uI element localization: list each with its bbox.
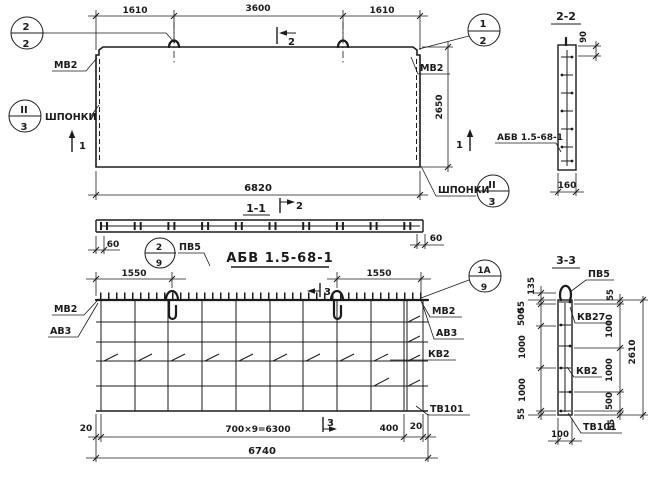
facade-panel-outline	[96, 47, 420, 167]
svg-text:160: 160	[558, 181, 577, 191]
dim-left-column: 135 55 500 1000 1000 55	[517, 277, 556, 420]
svg-text:6820: 6820	[244, 183, 272, 194]
dim-500: 500	[605, 392, 615, 410]
cut-mark-3-bottom: 3	[323, 417, 337, 432]
svg-text:АВ3: АВ3	[50, 326, 71, 337]
section-1-1: 1-1 2 60 60 2 9 ПВ5	[88, 198, 444, 269]
node-top: 1	[480, 19, 487, 30]
dim-500: 500	[517, 308, 527, 326]
dim-400: 400	[380, 424, 399, 434]
svg-text:2: 2	[296, 201, 303, 212]
section-title: 1-1	[246, 202, 266, 215]
node-bottom: 2	[23, 39, 30, 50]
mesh-view: 1550 1550 3 1А 9	[48, 260, 501, 462]
section-title: 2-2	[556, 10, 576, 23]
section-2-2: 2-2 90 160 АБВ 1.5-68-1	[495, 10, 601, 196]
node-bottom: 3	[21, 122, 28, 133]
dim-60-left: 60	[88, 236, 120, 254]
svg-text:АБВ 1.5-68-1: АБВ 1.5-68-1	[226, 251, 333, 266]
dim-6820: 6820	[88, 171, 428, 200]
section-title: 3-3	[556, 254, 576, 267]
cut-1-label: 1	[79, 141, 86, 152]
dim-1000: 1000	[518, 335, 528, 359]
svg-text:2610: 2610	[628, 339, 638, 364]
node-bottom: 2	[480, 36, 487, 47]
dim-20-left: 20	[80, 424, 93, 434]
dim-55: 55	[517, 408, 527, 420]
cut-mark-2-top: 2	[277, 27, 296, 48]
svg-text:2650: 2650	[435, 94, 445, 119]
node-callout-1a-9: 1А 9	[421, 260, 501, 298]
node-callout-2-2: 2 2	[11, 17, 175, 50]
svg-text:60: 60	[107, 240, 120, 250]
dim-55: 55	[607, 419, 617, 431]
dim-6740: 6740	[86, 446, 438, 461]
svg-text:КВ2: КВ2	[576, 366, 598, 377]
dim-20-right: 20	[410, 422, 423, 432]
node-top: 2	[156, 243, 162, 253]
dim-2650: 2650	[422, 42, 453, 172]
splice-marks	[104, 316, 420, 386]
svg-text:АБВ 1.5-68-1: АБВ 1.5-68-1	[497, 133, 563, 143]
svg-text:100: 100	[551, 430, 569, 440]
label-pv5-section: ПВ5	[570, 269, 614, 292]
node-top: II	[488, 180, 495, 191]
node-callout-1-2: 1 2	[419, 14, 500, 49]
svg-text:ПВ5: ПВ5	[588, 269, 610, 280]
dim-55: 55	[606, 289, 616, 301]
cut-mark-2-strip: 2	[280, 198, 303, 213]
node-top: II	[20, 105, 27, 116]
loop-axis-line	[174, 22, 343, 64]
dim-1000: 1000	[518, 378, 528, 402]
label-abv-section: АБВ 1.5-68-1	[495, 133, 563, 152]
pv5-label: ПВ5	[179, 242, 201, 253]
node-bottom: 9	[481, 283, 487, 293]
node-bottom: 3	[489, 197, 496, 208]
label-keys-right: ШПОНКИ II 3	[421, 166, 509, 208]
cut-mark-3-top: 3	[307, 283, 331, 298]
dim-700x9: 700×9=6300	[225, 425, 290, 435]
dim-1000: 1000	[605, 314, 615, 338]
svg-text:1550: 1550	[366, 269, 391, 279]
cut-mark-1-left: 1	[69, 130, 86, 152]
svg-text:МВ2: МВ2	[420, 63, 443, 74]
svg-text:90: 90	[579, 31, 589, 43]
dim-135: 135	[527, 277, 537, 295]
svg-text:3: 3	[327, 418, 334, 429]
svg-text:АВ3: АВ3	[436, 328, 457, 339]
dim-60-right: 60	[410, 234, 444, 249]
svg-text:МВ2: МВ2	[432, 306, 455, 317]
label-mv2-mesh-left: МВ2	[52, 301, 97, 315]
node-callout-2-9: 2 9 ПВ5	[145, 238, 210, 269]
panel-drawing-svg: 1610 3600 1610 2 2 2 МВ2 1	[0, 0, 656, 478]
panel-mark-title: АБВ 1.5-68-1	[226, 251, 333, 267]
node-top: 2	[23, 22, 30, 33]
svg-text:КВ2: КВ2	[428, 349, 450, 360]
dim-100: 100	[548, 418, 582, 445]
cut-1-label: 1	[456, 140, 463, 151]
node-top: 1А	[477, 266, 490, 276]
svg-text:1550: 1550	[121, 269, 146, 279]
dim-2610: 2610	[628, 296, 646, 420]
dim-1000: 1000	[605, 358, 615, 382]
dim-1610-right: 1610	[369, 6, 394, 16]
section-3-3: 3-3 ПВ5 135 55 500 1000 1000 55	[517, 254, 648, 445]
svg-text:60: 60	[430, 234, 443, 244]
dim-1550-right: 1550	[327, 269, 431, 296]
svg-text:КВ27: КВ27	[577, 312, 605, 323]
cut-mark-1-right: 1	[456, 129, 473, 151]
label-keys-left: II 3 ШПОНКИ	[9, 100, 99, 133]
dim-1610-left: 1610	[122, 6, 147, 16]
keys-text: ШПОНКИ	[45, 112, 96, 123]
dim-160: 160	[550, 173, 584, 196]
mesh-horizontal-bars	[96, 322, 428, 386]
dim-3600: 3600	[245, 4, 270, 14]
drawing-sheet: 1610 3600 1610 2 2 2 МВ2 1	[0, 0, 656, 478]
cut-2-label: 2	[288, 37, 295, 48]
svg-text:МВ2: МВ2	[54, 60, 77, 71]
svg-text:6740: 6740	[248, 446, 276, 457]
label-mv2-left: МВ2	[52, 58, 97, 71]
label-mv2-mesh-right: МВ2	[421, 301, 462, 317]
node-bottom: 9	[156, 259, 162, 269]
svg-text:ТВ101: ТВ101	[430, 404, 464, 415]
dim-90: 90	[578, 31, 601, 61]
label-tv101-mesh: ТВ101	[416, 404, 470, 415]
svg-text:МВ2: МВ2	[54, 304, 77, 315]
facade-view: 1610 3600 1610 2 2 2 МВ2 1	[9, 4, 509, 208]
